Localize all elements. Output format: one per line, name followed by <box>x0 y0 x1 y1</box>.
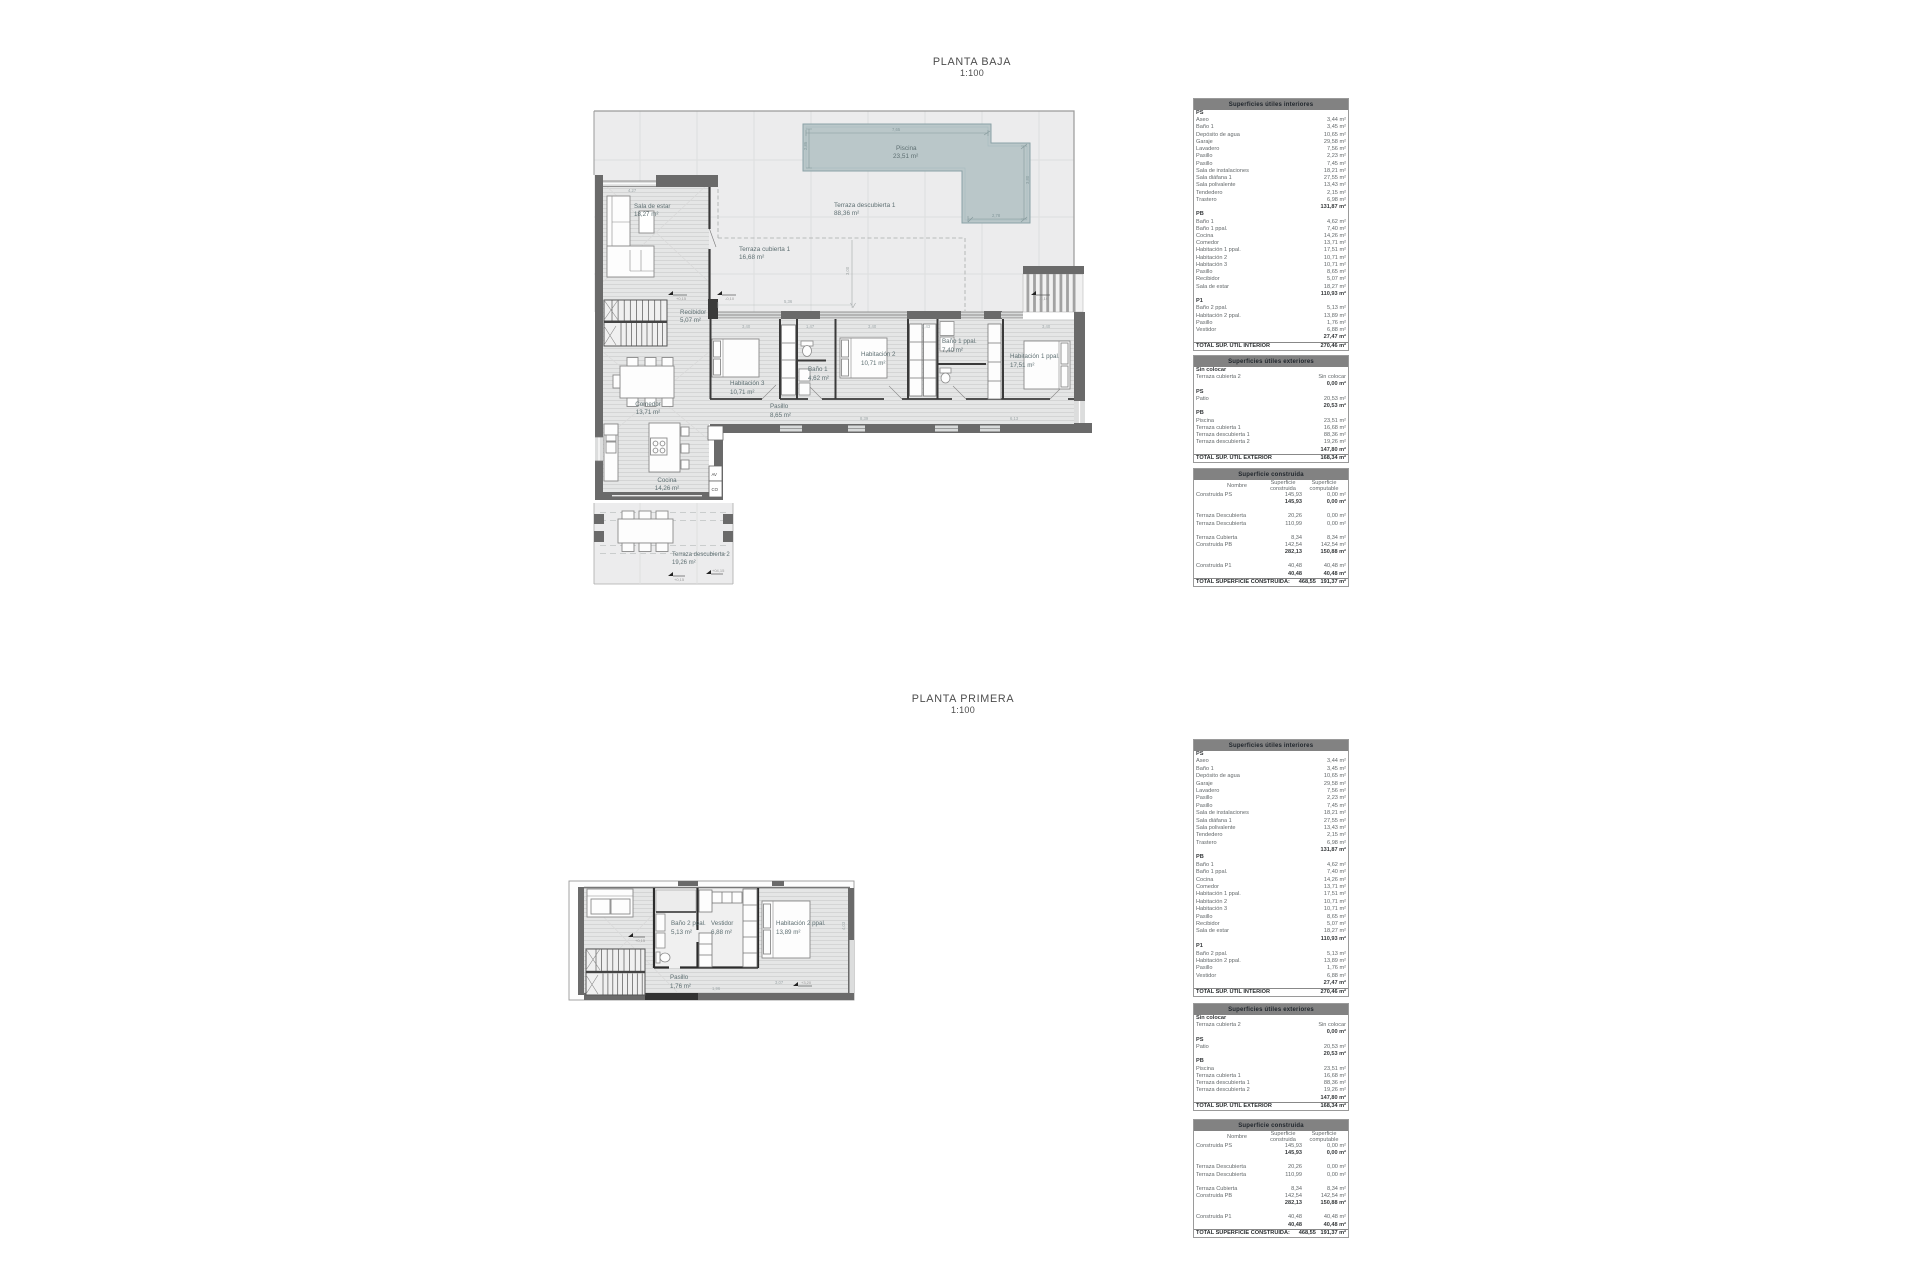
svg-text:7,65: 7,65 <box>892 127 901 132</box>
svg-text:+0,15: +0,15 <box>676 296 687 301</box>
svg-text:Pasillo: Pasillo <box>770 403 789 410</box>
svg-text:2,78: 2,78 <box>992 213 1001 218</box>
svg-text:+04,15: +04,15 <box>712 568 725 573</box>
svg-text:88,36 m²: 88,36 m² <box>834 210 859 217</box>
svg-text:Cocina: Cocina <box>657 477 677 484</box>
svg-text:4,62 m²: 4,62 m² <box>808 375 829 382</box>
svg-text:Habitación 2: Habitación 2 <box>861 351 896 358</box>
svg-text:Habitación 3: Habitación 3 <box>730 380 765 387</box>
svg-text:17,51 m²: 17,51 m² <box>1010 362 1034 369</box>
svg-text:3,43: 3,43 <box>922 324 931 329</box>
svg-text:CO: CO <box>712 487 719 492</box>
svg-text:14,26 m²: 14,26 m² <box>655 485 679 492</box>
svg-text:Comedor: Comedor <box>635 401 660 408</box>
svg-text:3,40: 3,40 <box>742 324 751 329</box>
svg-text:AV: AV <box>712 472 718 477</box>
svg-text:2,85: 2,85 <box>803 141 808 150</box>
svg-text:Terraza cubierta 1: Terraza cubierta 1 <box>739 246 791 253</box>
svg-text:-0,10: -0,10 <box>1039 296 1049 301</box>
svg-text:3,40: 3,40 <box>868 324 877 329</box>
svg-text:8,39: 8,39 <box>860 416 869 421</box>
svg-text:Baño 1: Baño 1 <box>808 366 828 373</box>
svg-text:1,76 m²: 1,76 m² <box>670 983 691 990</box>
svg-text:Vestidor: Vestidor <box>711 920 733 927</box>
svg-text:3,00: 3,00 <box>845 266 850 275</box>
svg-text:6,13: 6,13 <box>1010 416 1019 421</box>
svg-text:23,51 m²: 23,51 m² <box>893 153 918 160</box>
svg-text:Sala de estar: Sala de estar <box>634 203 670 210</box>
svg-text:5,36: 5,36 <box>784 299 793 304</box>
svg-text:Baño 1 ppal.: Baño 1 ppal. <box>942 338 977 345</box>
svg-text:Terraza descubierta 2: Terraza descubierta 2 <box>672 552 730 558</box>
svg-text:13,89 m²: 13,89 m² <box>776 929 800 936</box>
svg-text:Habitación 1 ppal.: Habitación 1 ppal. <box>1010 353 1060 360</box>
svg-text:6,88 m²: 6,88 m² <box>711 929 732 936</box>
svg-text:+3,20: +3,20 <box>801 980 812 985</box>
svg-text:10,71 m²: 10,71 m² <box>861 360 885 367</box>
svg-text:3,40: 3,40 <box>1042 324 1051 329</box>
svg-text:Habitación 2 ppal.: Habitación 2 ppal. <box>776 920 826 927</box>
svg-text:16,68 m²: 16,68 m² <box>739 254 764 261</box>
svg-text:10,71 m²: 10,71 m² <box>730 389 754 396</box>
svg-text:4,27: 4,27 <box>628 188 637 193</box>
svg-text:3,07: 3,07 <box>775 980 784 985</box>
svg-text:Recibidor: Recibidor <box>680 309 706 316</box>
svg-text:Pasillo: Pasillo <box>670 974 689 981</box>
svg-text:1,47: 1,47 <box>806 324 815 329</box>
svg-text:+0,15: +0,15 <box>674 577 685 582</box>
svg-text:Piscina: Piscina <box>896 145 917 152</box>
svg-text:3,80: 3,80 <box>1025 175 1030 184</box>
svg-text:Terraza descubierta 1: Terraza descubierta 1 <box>834 202 896 209</box>
svg-text:5,07 m²: 5,07 m² <box>680 317 701 324</box>
svg-text:18,27 m²: 18,27 m² <box>634 211 658 218</box>
svg-text:7,40 m²: 7,40 m² <box>942 347 963 354</box>
svg-text:5,13 m²: 5,13 m² <box>671 929 692 936</box>
svg-text:19,26 m²: 19,26 m² <box>672 560 696 566</box>
svg-text:13,71 m²: 13,71 m² <box>636 409 660 416</box>
svg-text:4,03: 4,03 <box>841 921 846 930</box>
svg-text:-0,10: -0,10 <box>725 296 735 301</box>
svg-text:Baño 2 ppal.: Baño 2 ppal. <box>671 920 706 927</box>
svg-text:8,65 m²: 8,65 m² <box>770 412 791 419</box>
svg-text:1,96: 1,96 <box>712 986 721 991</box>
svg-text:+0,15: +0,15 <box>635 938 646 943</box>
